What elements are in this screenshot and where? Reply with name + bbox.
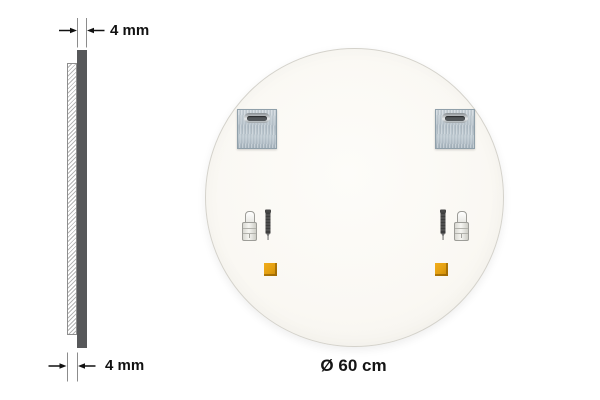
mirror-product-diagram: 4 mm 4 mm	[0, 0, 600, 400]
wall-anchor-icon	[454, 211, 469, 241]
screw-icon	[439, 209, 447, 241]
anchor-body	[242, 222, 257, 241]
hardware-set	[242, 209, 272, 241]
screw-icon	[264, 209, 272, 241]
mirror-back-circle	[205, 48, 504, 347]
plate-slot-bezel	[244, 113, 270, 123]
diameter-label: Ø 60 cm	[205, 356, 502, 375]
bottom-thickness-label: 4 mm	[105, 357, 144, 374]
wall-anchor-icon	[242, 211, 257, 241]
top-thickness-label: 4 mm	[110, 22, 149, 39]
adhesive-pad-icon	[264, 263, 277, 276]
mounting-plate-icon	[237, 109, 277, 149]
dimension-arrows	[0, 0, 170, 400]
hardware-set	[439, 209, 469, 241]
mounting-plate-icon	[435, 109, 475, 149]
plate-slot-opening	[247, 116, 267, 121]
anchor-body	[454, 222, 469, 241]
plate-slot-bezel	[442, 113, 468, 123]
adhesive-pad-icon	[435, 263, 448, 276]
plate-slot-opening	[445, 116, 465, 121]
